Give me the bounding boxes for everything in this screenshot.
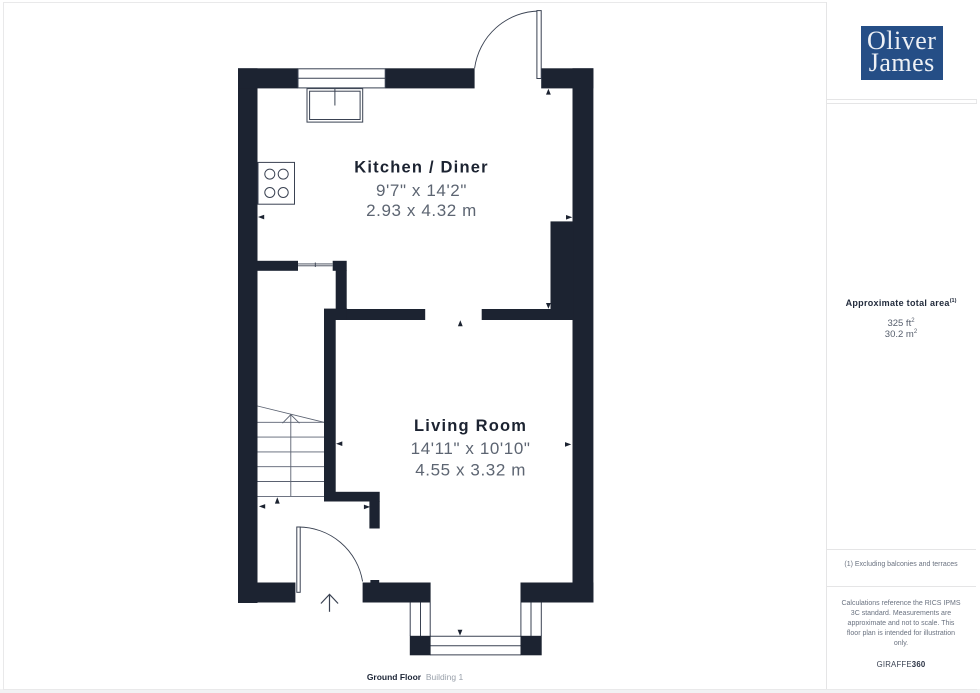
- svg-text:Kitchen / Diner: Kitchen / Diner: [354, 158, 488, 176]
- svg-text:Living Room: Living Room: [414, 417, 527, 435]
- svg-text:4.55 x 3.32 m: 4.55 x 3.32 m: [415, 461, 526, 480]
- svg-text:2.93 x 4.32 m: 2.93 x 4.32 m: [366, 201, 477, 220]
- svg-text:14'11" x 10'10": 14'11" x 10'10": [411, 439, 531, 458]
- svg-text:9'7" x 14'2": 9'7" x 14'2": [376, 181, 467, 200]
